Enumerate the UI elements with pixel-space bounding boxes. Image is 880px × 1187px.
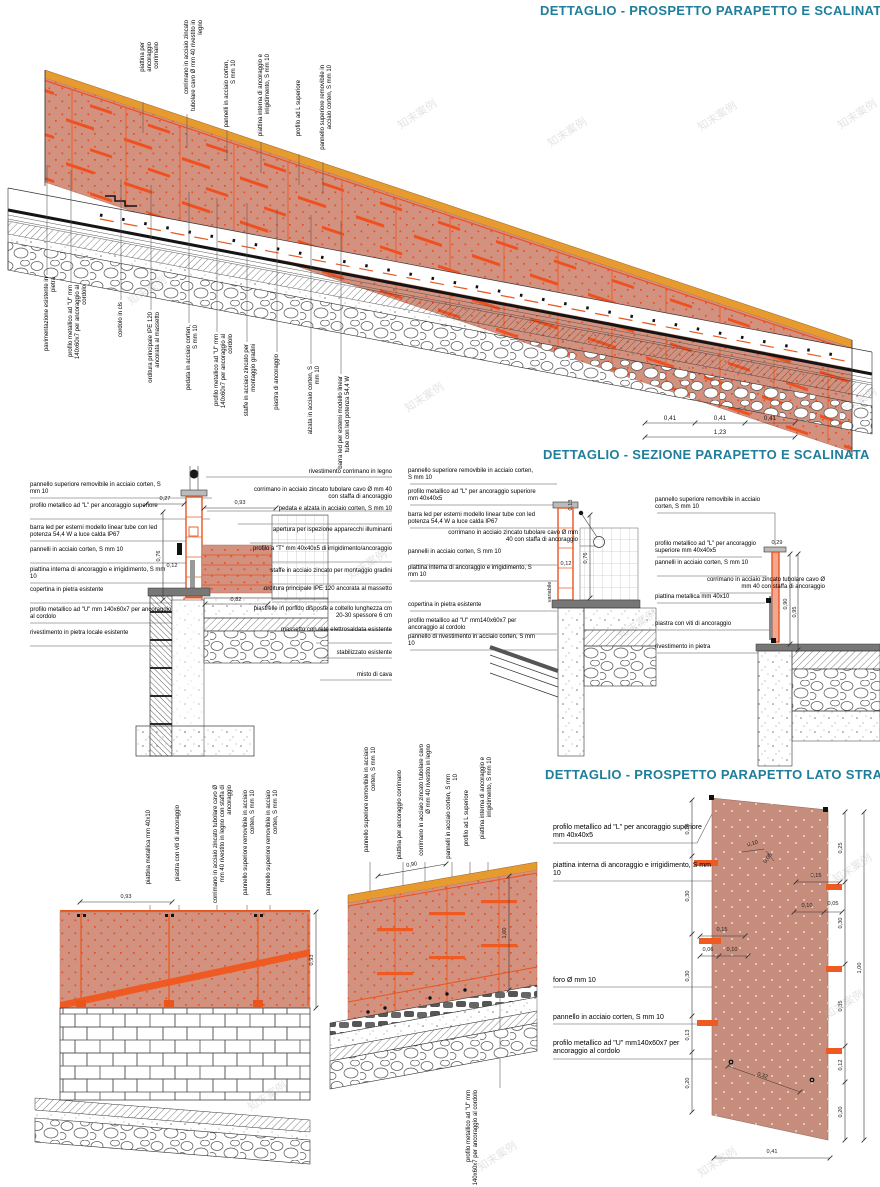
dimension-value: 0,82 (231, 597, 242, 603)
annotation-label: piattina interna di ancoraggio e irrigid… (480, 757, 494, 862)
dimension-value: 0,05 (828, 901, 839, 907)
annotation-label: copertina in pietra esistente (408, 602, 538, 609)
detail-bottom-middle: 0,90 1,00 (330, 861, 537, 1089)
annotation-label: piattina metallica mm 40x10 (146, 810, 153, 905)
annotation-label: pannelli in acciaio corten, S mm 10 (408, 549, 538, 556)
annotation-label: orditura principale IPE 120 ancorata al … (252, 586, 392, 593)
annotation-label: rivestimento in pietra (655, 644, 775, 651)
dimension-value: 1,23 (714, 429, 727, 436)
dimension-value: 1,00 (857, 963, 863, 974)
annotation-label: corrimano in acciaio zincato tubolare ca… (184, 20, 205, 112)
dimension-value: variabile (547, 582, 553, 603)
annotation-label: piastrelle in porfido disposte a coltell… (252, 606, 392, 620)
dimension-value: 0,30 (685, 891, 691, 902)
annotation-label: alzata in acciaio corten, S mm 10 (308, 366, 322, 436)
title-detail3: DETTAGLIO - PROSPETTO PARAPETTO LATO STR… (545, 767, 880, 782)
dimension-value: 0,15 (717, 927, 728, 933)
annotation-label: misto di cava (252, 672, 392, 679)
annotation-label: pannelli in acciaio corten, S mm 10 (446, 774, 460, 862)
annotation-label: profilo metallico ad "L" per ancoraggio … (553, 824, 713, 841)
annotation-label: profilo metallico ad "L" per ancoraggio … (655, 541, 775, 555)
annotation-label: pavimentazione esistente in pietra (44, 277, 58, 367)
dimension-value: 0,06 (703, 947, 714, 953)
annotation-label: massetto con rete elettrosaldata esisten… (252, 627, 392, 634)
annotation-label: orditura principale IPE 120 ancorata al … (148, 312, 162, 402)
dimension-value: 0,25 (838, 843, 844, 854)
annotation-label: pannello superiore removibile in acciaio… (320, 65, 334, 160)
annotation-label: rivestimento corrimano in legno (252, 469, 392, 476)
annotation-label: pannello superiore removibile in acciaio… (30, 482, 172, 496)
annotation-label: profilo metallico ad "U" mm 140x60x7 per… (214, 334, 235, 429)
dimension-value: 0,12 (838, 1060, 844, 1071)
dimension-value: 0,13 (685, 1030, 691, 1041)
annotation-label: pannello di rivestimento in acciaio cort… (408, 634, 538, 648)
dimension-value: 0,93 (309, 955, 315, 966)
dimension-value: 0,13 (568, 500, 574, 511)
dimension-value: 0,90 (783, 599, 789, 610)
annotation-label: barra led per esterni modello linear tub… (338, 376, 352, 471)
annotation-label: corrimano in acciaio zincato tubolare ca… (700, 577, 825, 591)
annotation-label: pannello superiore removibile in acciaio… (655, 497, 775, 511)
dimension-value: 0,10 (802, 903, 813, 909)
annotation-label: profilo ad L superiore (464, 790, 471, 862)
dimension-value: 0,15 (811, 873, 822, 879)
annotation-label: corrimano in acciaio zincato tubolare ca… (448, 530, 578, 544)
annotation-label: piattina interna di ancoraggio e irrigid… (553, 862, 713, 879)
dimension-value: 0,20 (685, 1078, 691, 1089)
annotation-label: barra led per esterni modello linear tub… (30, 525, 172, 539)
annotation-label: profilo metallico ad "U" mm140x60x7 per … (408, 618, 538, 632)
dimension-value: 0,95 (792, 607, 798, 618)
annotation-label: piattina per ancoraggio corrimano (140, 42, 161, 100)
annotation-label: corrimano in acciaio zincato tubolare ca… (213, 785, 234, 905)
annotation-label: cordolo in cls (118, 302, 125, 357)
title-detail2: DETTAGLIO - SEZIONE PARAPETTO E SCALINAT… (543, 447, 870, 462)
annotation-label: foro Ø mm 10 (553, 977, 713, 985)
annotation-label: profilo ad L superiore (296, 80, 303, 152)
dimension-value: 0,12 (561, 561, 572, 567)
annotation-label: pannello superiore removibile in acciaio… (266, 790, 280, 905)
annotation-label: profilo metallico ad "U" mm140x60x7 per … (553, 1040, 713, 1057)
annotation-label: piastra con viti di ancoraggio (175, 805, 182, 905)
annotation-label: copertina in pietra esistente (30, 587, 172, 594)
dimension-value: 0,10 (727, 947, 738, 953)
annotation-label: stabilizzato esistente (252, 650, 392, 657)
annotation-label: profilo metallico ad "U" mm 140x60x7 per… (68, 285, 89, 380)
annotation-label: piastra con viti di ancoraggio (655, 621, 775, 628)
annotation-label: pannello in acciaio corten, S mm 10 (553, 1014, 713, 1022)
dimension-value: 0,41 (714, 415, 727, 422)
annotation-label: pannelli in acciaio corten, S mm 10 (224, 60, 238, 128)
dimension-value: 0,76 (583, 553, 589, 564)
annotation-label: pedata e alzata in acciaio corten, S mm … (252, 506, 392, 513)
annotation-label: pannello superiore removibile in acciaio… (364, 747, 378, 862)
detail-bottom-left: 0,93 0,93 (35, 894, 318, 1164)
annotation-label: pannello superiore removibile in acciaio… (408, 468, 538, 482)
annotation-label: piattina interna di ancoraggio e irrigid… (258, 54, 272, 140)
annotation-label: profilo metallico ad "U" mm 140x60x7 per… (466, 1090, 480, 1186)
dimension-value: 0,41 (664, 415, 677, 422)
annotation-label: piastra di ancoraggio (274, 354, 281, 424)
annotation-label: pedata in acciaio corten, S mm 10 (186, 325, 200, 395)
annotation-label: apertura per ispezione apparecchi illumi… (252, 527, 392, 534)
dimension-value: 0,30 (838, 918, 844, 929)
drawing-sheet: 0,41 0,41 0,41 1,23 (0, 0, 880, 1187)
annotation-label: piattina interna di ancoraggio e irrigid… (408, 565, 538, 579)
dimension-value: 1,00 (502, 928, 508, 939)
dimension-value: 0,20 (838, 1107, 844, 1118)
annotation-label: piattina per ancoraggio corrimano (397, 770, 404, 862)
annotation-label: piattina interna di ancoraggio e irrigid… (30, 567, 172, 581)
annotation-label: pannello superiore removibile in acciaio… (243, 790, 257, 905)
dimension-value: 0,27 (160, 496, 171, 502)
annotation-label: pannelli in acciaio corten, S mm 10 (30, 547, 172, 554)
annotation-label: rivestimento in pietra locale esistente (30, 630, 172, 637)
annotation-label: piattina metallica mm 40x10 (655, 594, 775, 601)
annotation-label: profilo metallico ad "U" mm 140x60x7 per… (30, 607, 172, 621)
detail1-elevation: 0,41 0,41 0,41 1,23 (8, 70, 872, 456)
dimension-value: 0,41 (767, 1149, 778, 1155)
annotation-label: profilo metallico ad "L" per ancoraggio … (408, 489, 538, 503)
annotation-label: corrimano in acciaio zincato tubolare ca… (252, 487, 392, 501)
annotation-label: barra led per esterni modello linear tub… (408, 512, 538, 526)
dimension-value: 0,93 (235, 500, 246, 506)
annotation-label: pannelli in acciaio corten, S mm 10 (655, 560, 775, 567)
title-detail1: DETTAGLIO - PROSPETTO PARAPETTO E SCALIN… (540, 3, 880, 18)
dimension-value: 0,41 (764, 415, 777, 422)
annotation-label: profilo metallico ad "L" per ancoraggio … (30, 503, 172, 510)
annotation-label: staffe in acciaio zincato per montaggio … (244, 344, 258, 434)
dimension-value: 0,93 (121, 894, 132, 900)
annotation-label: corrimano in acciaio zincato tubolare ca… (419, 744, 433, 862)
dimension-value: 0,90 (406, 861, 418, 869)
